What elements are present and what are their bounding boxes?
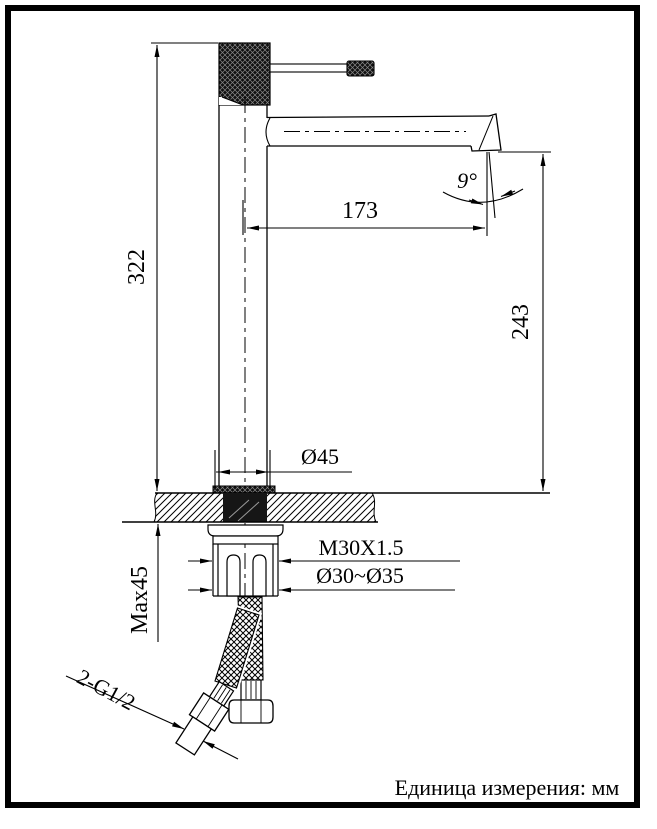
technical-drawing-page: 322 173 243 9° Ø45 M30X1.5 Ø30~Ø35 Max45… (0, 0, 657, 829)
label-mounting-thread: M30X1.5 (319, 537, 404, 559)
dim-max-mounting-thickness: Max45 (128, 566, 152, 634)
faucet-outline (219, 43, 501, 488)
dim-total-height: 322 (125, 249, 149, 285)
deck-section (122, 486, 550, 522)
dim-spout-reach: 173 (342, 199, 378, 223)
technical-drawing-canvas (0, 0, 657, 829)
supply-hoses (173, 597, 273, 757)
dim-outlet-height: 243 (509, 304, 533, 340)
dim-escutcheon-diameter: Ø45 (301, 446, 339, 468)
units-note: Единица измерения: мм (395, 777, 620, 799)
dim-outlet-angle: 9° (457, 170, 477, 192)
label-mounting-hole: Ø30~Ø35 (316, 565, 404, 587)
